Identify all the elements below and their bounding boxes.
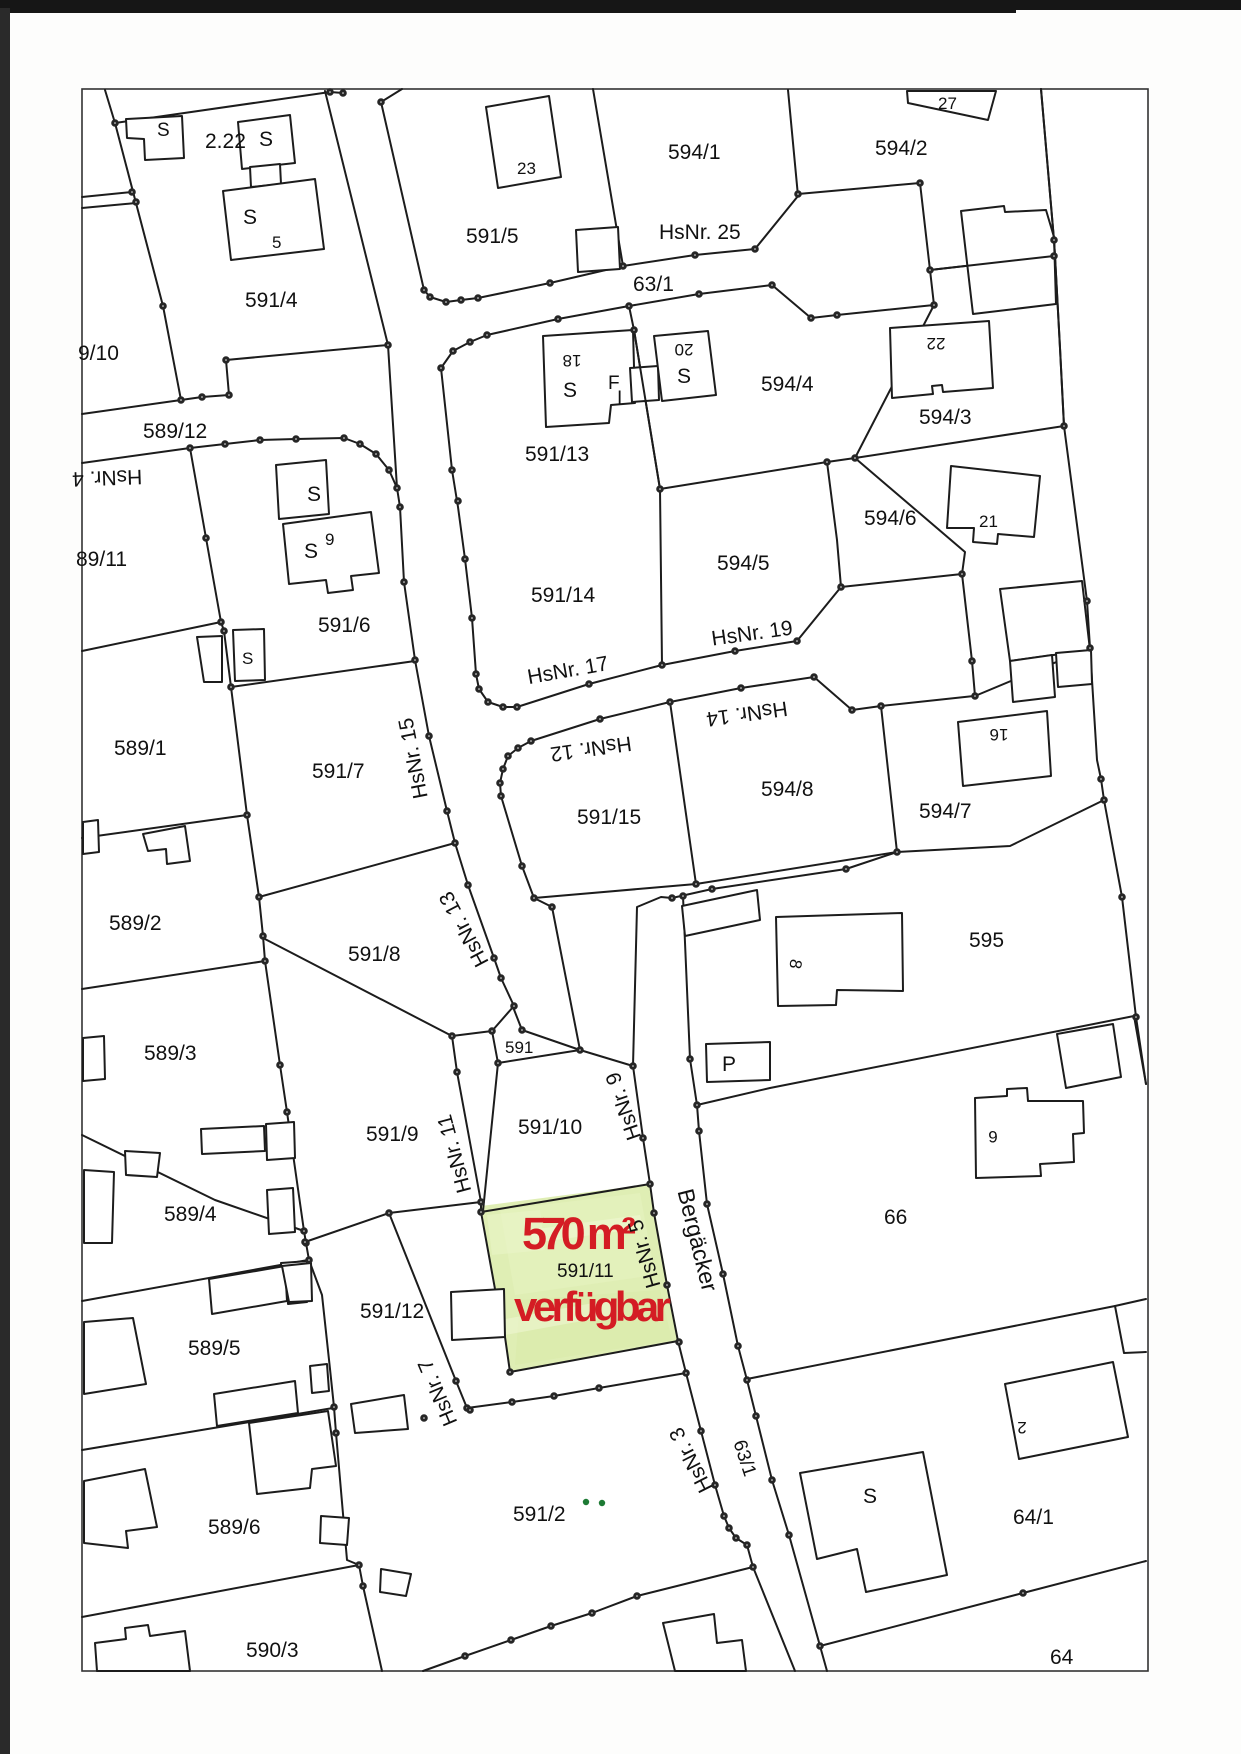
svg-text:591/15: 591/15 [577, 806, 641, 829]
svg-text:591/12: 591/12 [360, 1300, 424, 1323]
svg-text:591/9: 591/9 [366, 1123, 419, 1146]
svg-text:18: 18 [563, 351, 582, 370]
svg-text:16: 16 [990, 725, 1009, 744]
svg-text:589/6: 589/6 [208, 1516, 261, 1539]
svg-text:64/1: 64/1 [1013, 1506, 1054, 1529]
svg-text:589/12: 589/12 [143, 420, 207, 443]
svg-text:591/11: 591/11 [557, 1261, 614, 1282]
svg-text:594/6: 594/6 [864, 507, 917, 530]
svg-text:591/6: 591/6 [318, 614, 371, 637]
svg-text:591/2: 591/2 [513, 1503, 566, 1526]
svg-text:P: P [722, 1053, 736, 1076]
svg-text:591/8: 591/8 [348, 943, 401, 966]
svg-text:S: S [259, 128, 273, 151]
svg-text:5: 5 [272, 233, 281, 252]
svg-text:9/10: 9/10 [78, 342, 119, 365]
svg-text:HsNr. 4: HsNr. 4 [72, 465, 143, 490]
svg-text:594/8: 594/8 [761, 778, 814, 801]
svg-text:589/4: 589/4 [164, 1203, 217, 1226]
svg-text:9: 9 [325, 530, 334, 549]
svg-text:594/1: 594/1 [668, 141, 721, 164]
svg-text:S: S [307, 483, 321, 506]
svg-text:589/2: 589/2 [109, 912, 162, 935]
svg-text:594/4: 594/4 [761, 373, 814, 396]
svg-text:63/1: 63/1 [633, 273, 674, 296]
svg-text:591: 591 [505, 1038, 533, 1057]
svg-text:589/3: 589/3 [144, 1042, 197, 1065]
svg-text:S: S [304, 540, 318, 563]
svg-text:591/14: 591/14 [531, 584, 596, 607]
svg-text:570 m²: 570 m² [522, 1208, 636, 1259]
svg-text:6: 6 [988, 1127, 997, 1146]
svg-text:23: 23 [517, 159, 536, 178]
svg-text:591/4: 591/4 [245, 289, 298, 312]
svg-text:HsNr. 25: HsNr. 25 [659, 221, 741, 244]
svg-text:589/5: 589/5 [188, 1337, 241, 1360]
svg-text:21: 21 [979, 512, 998, 531]
svg-text:595: 595 [969, 929, 1004, 952]
svg-text:594/5: 594/5 [717, 552, 770, 575]
svg-text:594/2: 594/2 [875, 137, 928, 160]
svg-text:64: 64 [1050, 1646, 1074, 1669]
svg-text:590/3: 590/3 [246, 1639, 299, 1662]
svg-text:591/10: 591/10 [518, 1116, 582, 1139]
svg-text:2.22: 2.22 [205, 130, 246, 153]
svg-text:591/5: 591/5 [466, 225, 519, 248]
svg-text:S: S [677, 365, 691, 388]
svg-text:89/11: 89/11 [76, 548, 127, 571]
svg-text:2: 2 [1017, 1418, 1026, 1437]
svg-text:S: S [863, 1485, 877, 1508]
svg-text:589/1: 589/1 [114, 737, 167, 760]
svg-text:S: S [563, 379, 577, 402]
svg-text:S: S [157, 120, 170, 141]
svg-text:S: S [242, 649, 253, 668]
svg-text:594/3: 594/3 [919, 406, 972, 429]
svg-text:22: 22 [927, 334, 946, 353]
svg-text:20: 20 [675, 340, 694, 359]
svg-text:S: S [243, 206, 257, 229]
svg-text:594/7: 594/7 [919, 800, 972, 823]
svg-text:I: I [617, 388, 622, 409]
svg-text:66: 66 [884, 1206, 907, 1229]
svg-text:591/13: 591/13 [525, 443, 589, 466]
svg-text:591/7: 591/7 [312, 760, 365, 783]
svg-text:27: 27 [938, 94, 957, 113]
